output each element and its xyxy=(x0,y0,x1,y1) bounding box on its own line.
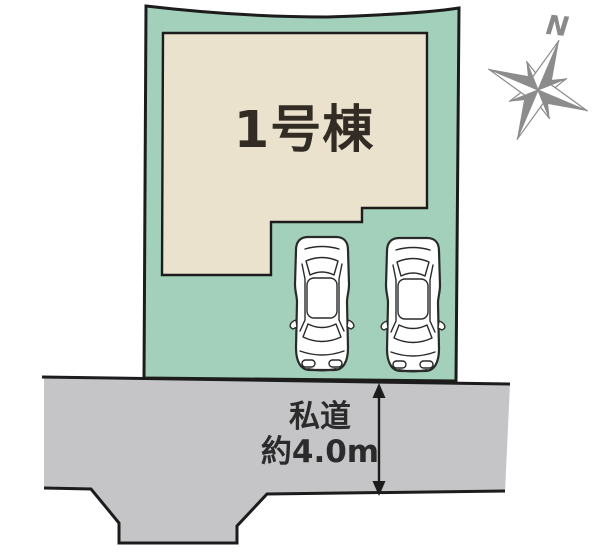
road-label-name: 私道 xyxy=(225,400,415,435)
site-plan: 1号棟 私道 約4.0m N xyxy=(0,0,600,552)
road-label-width: 約4.0m xyxy=(225,435,415,470)
compass-north-label: N xyxy=(544,10,587,45)
car-icon xyxy=(290,237,354,371)
building-label: 1号棟 xyxy=(174,104,434,158)
car-icon xyxy=(381,238,445,372)
road-label: 私道 約4.0m xyxy=(225,400,415,470)
